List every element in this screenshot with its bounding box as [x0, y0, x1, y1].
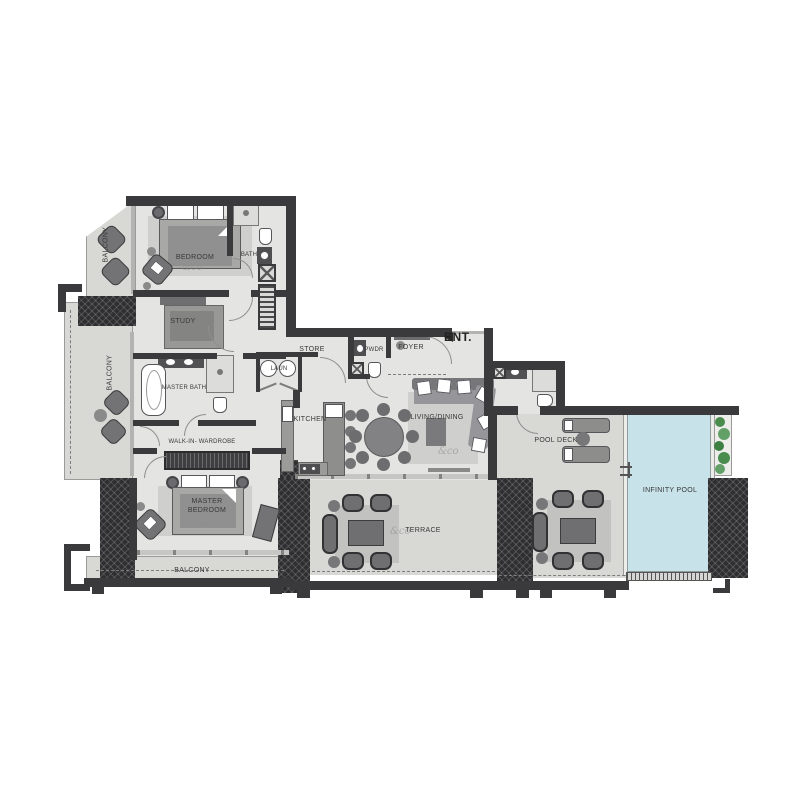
wall [298, 352, 302, 392]
dining-chair-icon [356, 409, 369, 422]
wall [126, 196, 296, 206]
wall [540, 406, 558, 415]
wall [227, 198, 233, 256]
label-bedroom: BEDROOM [165, 253, 225, 262]
outdoor-chair-icon [582, 552, 604, 570]
shaft-box [350, 362, 364, 376]
balcony-left-floor [64, 302, 133, 480]
label-powder: PWDR [354, 346, 394, 354]
wall-tooth [540, 590, 552, 598]
label-balcony-top: BALCONY [101, 215, 110, 275]
side-table-icon [328, 500, 340, 512]
wall [84, 578, 292, 587]
side-table-icon [143, 282, 151, 290]
toilet-icon [259, 228, 272, 245]
stool-icon [345, 442, 356, 453]
label-foyer: FOYER [391, 343, 431, 352]
balcony-table-icon [94, 409, 107, 422]
side-table-icon [536, 552, 548, 564]
wall [129, 478, 137, 560]
tv-console [428, 468, 470, 472]
sink-icon [165, 358, 176, 366]
stool-icon [345, 410, 356, 421]
label-terrace: TERRACE [398, 526, 448, 535]
wall-tooth [297, 590, 310, 598]
floor-plan: &co &co [0, 0, 800, 800]
wall [133, 353, 217, 359]
side-table-icon [536, 498, 548, 510]
sofa-pillow [416, 380, 432, 396]
label-study: STUDY [163, 317, 203, 326]
wall [286, 196, 296, 337]
plant-icon [718, 452, 730, 464]
nightstand-icon [152, 206, 165, 219]
deck-dash-line [499, 575, 625, 576]
brand-watermark: &co [438, 446, 459, 457]
shaft-box [258, 264, 276, 282]
dining-table-icon [364, 417, 404, 457]
label-laundry: LAUN [261, 365, 297, 373]
plant-icon [715, 464, 725, 474]
label-balcony-bottom: BALCONY [162, 566, 222, 575]
burner [311, 466, 316, 471]
side-table-icon [147, 247, 156, 256]
dining-chair-icon [377, 458, 390, 471]
brand-watermark: &co [200, 518, 221, 529]
label-living-dining: LIVING/DINING [402, 413, 472, 422]
wall [133, 448, 157, 454]
window-glass [137, 550, 289, 555]
sofa-pillow [436, 378, 451, 393]
brand-watermark: &co [182, 262, 203, 273]
outdoor-chair-icon [370, 494, 392, 512]
wardrobe-closet [164, 451, 250, 470]
outdoor-chair-icon [582, 490, 604, 508]
label-balcony-left: BALCONY [105, 343, 114, 403]
wall [291, 581, 535, 590]
toilet-icon [213, 397, 227, 413]
balcony-dash-line [70, 310, 71, 474]
plant-icon [718, 428, 730, 440]
lounger-pillow [564, 448, 573, 461]
wall [556, 406, 739, 415]
label-store: STORE [287, 345, 337, 354]
structure-pier [78, 296, 136, 326]
stair-ladder [258, 284, 276, 330]
wall-step [58, 284, 66, 312]
pool-edge-railing [626, 572, 712, 581]
wall [488, 412, 497, 480]
lounger-pillow [564, 420, 573, 431]
outdoor-chair-icon [370, 552, 392, 570]
sink-icon [183, 358, 194, 366]
dining-chair-icon [377, 403, 390, 416]
outdoor-chair-icon [552, 552, 574, 570]
dining-chair-icon [398, 451, 411, 464]
wall-mark [725, 579, 730, 593]
wall-tooth [92, 587, 104, 594]
wall-tooth [604, 590, 616, 598]
wall [484, 328, 493, 416]
terrace-dash-line [312, 571, 495, 572]
dining-chair-icon [406, 430, 419, 443]
wall [252, 448, 286, 454]
pillow-icon [167, 205, 194, 220]
structure-pier [497, 478, 533, 590]
foyer-dash-line [388, 374, 446, 375]
stool-icon [345, 458, 356, 469]
label-infinity-pool: INFINITY POOL [635, 486, 705, 495]
outdoor-chair-icon [552, 490, 574, 508]
plant-icon [714, 441, 724, 451]
window-glass [131, 206, 135, 294]
label-pool-deck: POOL DECK [531, 436, 581, 445]
pillow-icon [197, 205, 224, 220]
outdoor-chair-icon [342, 494, 364, 512]
label-entrance: ENT. [444, 330, 472, 344]
structure-pier [278, 478, 310, 593]
shower-drain [217, 369, 223, 375]
wall [293, 390, 300, 408]
plant-icon [715, 417, 725, 427]
label-walk-in-wardrobe: WALK-IN- WARDROBE [157, 438, 247, 446]
dining-chair-icon [356, 451, 369, 464]
pool-ladder-icon [620, 466, 632, 468]
wall [533, 581, 629, 590]
shaft-box [493, 366, 506, 379]
pool-ladder-icon [628, 462, 630, 478]
wall-tooth [470, 590, 483, 598]
shower-drain [243, 210, 249, 216]
outdoor-bench-icon [532, 512, 548, 552]
label-master-bedroom: MASTER BEDROOM [172, 497, 242, 516]
pool-ladder-icon [620, 474, 632, 476]
label-kitchen: KITCHEN [287, 415, 333, 424]
side-table-icon [328, 556, 340, 568]
wall [256, 352, 260, 392]
sofa-pillow [471, 437, 487, 453]
wall-tooth [516, 590, 529, 598]
side-table-icon [136, 502, 145, 511]
dining-chair-icon [349, 430, 362, 443]
wall [198, 420, 256, 426]
burner [302, 466, 307, 471]
sofa-pillow [456, 379, 471, 394]
outdoor-table-icon [560, 518, 596, 544]
outdoor-bench-icon [322, 514, 338, 554]
wall [133, 290, 229, 297]
label-master-bath: MASTER BATH [154, 384, 214, 392]
label-bath: BATH [234, 251, 264, 259]
outdoor-table-icon [348, 520, 384, 546]
wall [286, 328, 452, 337]
structure-pier [708, 478, 748, 578]
outdoor-chair-icon [342, 552, 364, 570]
wall-tooth [270, 587, 282, 594]
study-cabinet [160, 297, 206, 305]
wall [133, 420, 179, 426]
